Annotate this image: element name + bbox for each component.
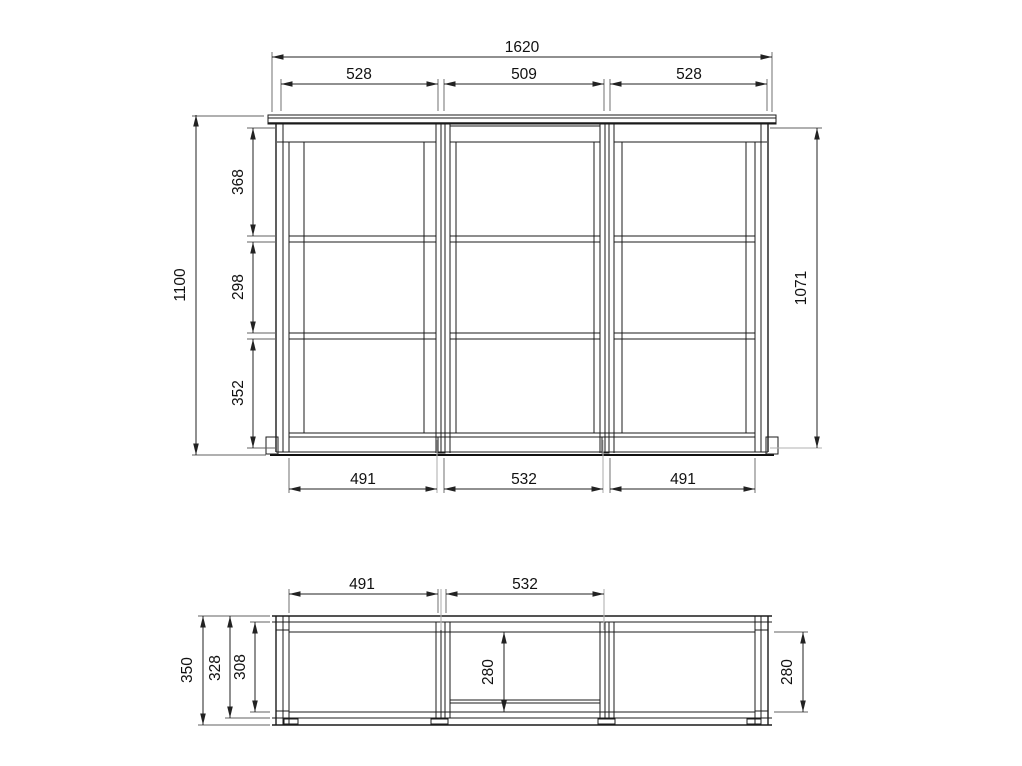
dim-label-plan-right-depth: 280 bbox=[779, 659, 796, 685]
plan-dim-depths-left: 350 328 308 bbox=[179, 616, 270, 725]
dim-label-front-overall-width: 1620 bbox=[505, 39, 540, 56]
cabinet-dimension-drawing: 1620 528 509 528 1100 bbox=[0, 0, 1022, 766]
front-cabinet-outline bbox=[266, 115, 778, 455]
dim-label-plan-depth-inner: 308 bbox=[232, 654, 249, 680]
plan-dim-right-depth: 280 bbox=[774, 632, 808, 712]
dim-label-plan-depth-mid: 328 bbox=[207, 655, 224, 681]
dim-label-front-interior-height-right: 1071 bbox=[793, 271, 810, 305]
dim-label-plan-width-middle: 532 bbox=[512, 576, 538, 593]
front-elevation-view: 1620 528 509 528 1100 bbox=[172, 39, 822, 493]
dim-label-front-bottom-middle: 532 bbox=[511, 471, 537, 488]
dim-label-front-bottom-left: 491 bbox=[350, 471, 376, 488]
dim-label-front-row2-height: 298 bbox=[230, 274, 247, 300]
front-dim-overall-height: 1100 bbox=[172, 115, 266, 455]
dim-label-plan-depth-overall: 350 bbox=[179, 657, 196, 683]
plan-view: 491 532 350 328 308 280 280 bbox=[179, 576, 808, 725]
plan-cabinet-outline bbox=[272, 616, 772, 725]
dim-label-plan-center-depth: 280 bbox=[480, 659, 497, 685]
front-dim-bottom-sections: 491 532 491 bbox=[289, 440, 755, 493]
front-dim-interior-height-right: 1071 bbox=[770, 128, 822, 448]
dim-label-front-top-middle: 509 bbox=[511, 66, 537, 83]
dim-label-front-overall-height: 1100 bbox=[172, 268, 189, 302]
dim-label-front-top-right: 528 bbox=[676, 66, 702, 83]
dim-label-front-row1-height: 368 bbox=[230, 169, 247, 195]
technical-drawing-canvas: 1620 528 509 528 1100 bbox=[0, 0, 1022, 766]
dim-label-front-top-left: 528 bbox=[346, 66, 372, 83]
dim-label-front-bottom-right: 491 bbox=[670, 471, 696, 488]
front-dim-interior-heights: 368 298 352 bbox=[230, 128, 276, 448]
front-dim-top-sections: 528 509 528 bbox=[281, 66, 767, 111]
dim-label-front-row3-height: 352 bbox=[230, 380, 247, 406]
dim-label-plan-width-left: 491 bbox=[349, 576, 375, 593]
